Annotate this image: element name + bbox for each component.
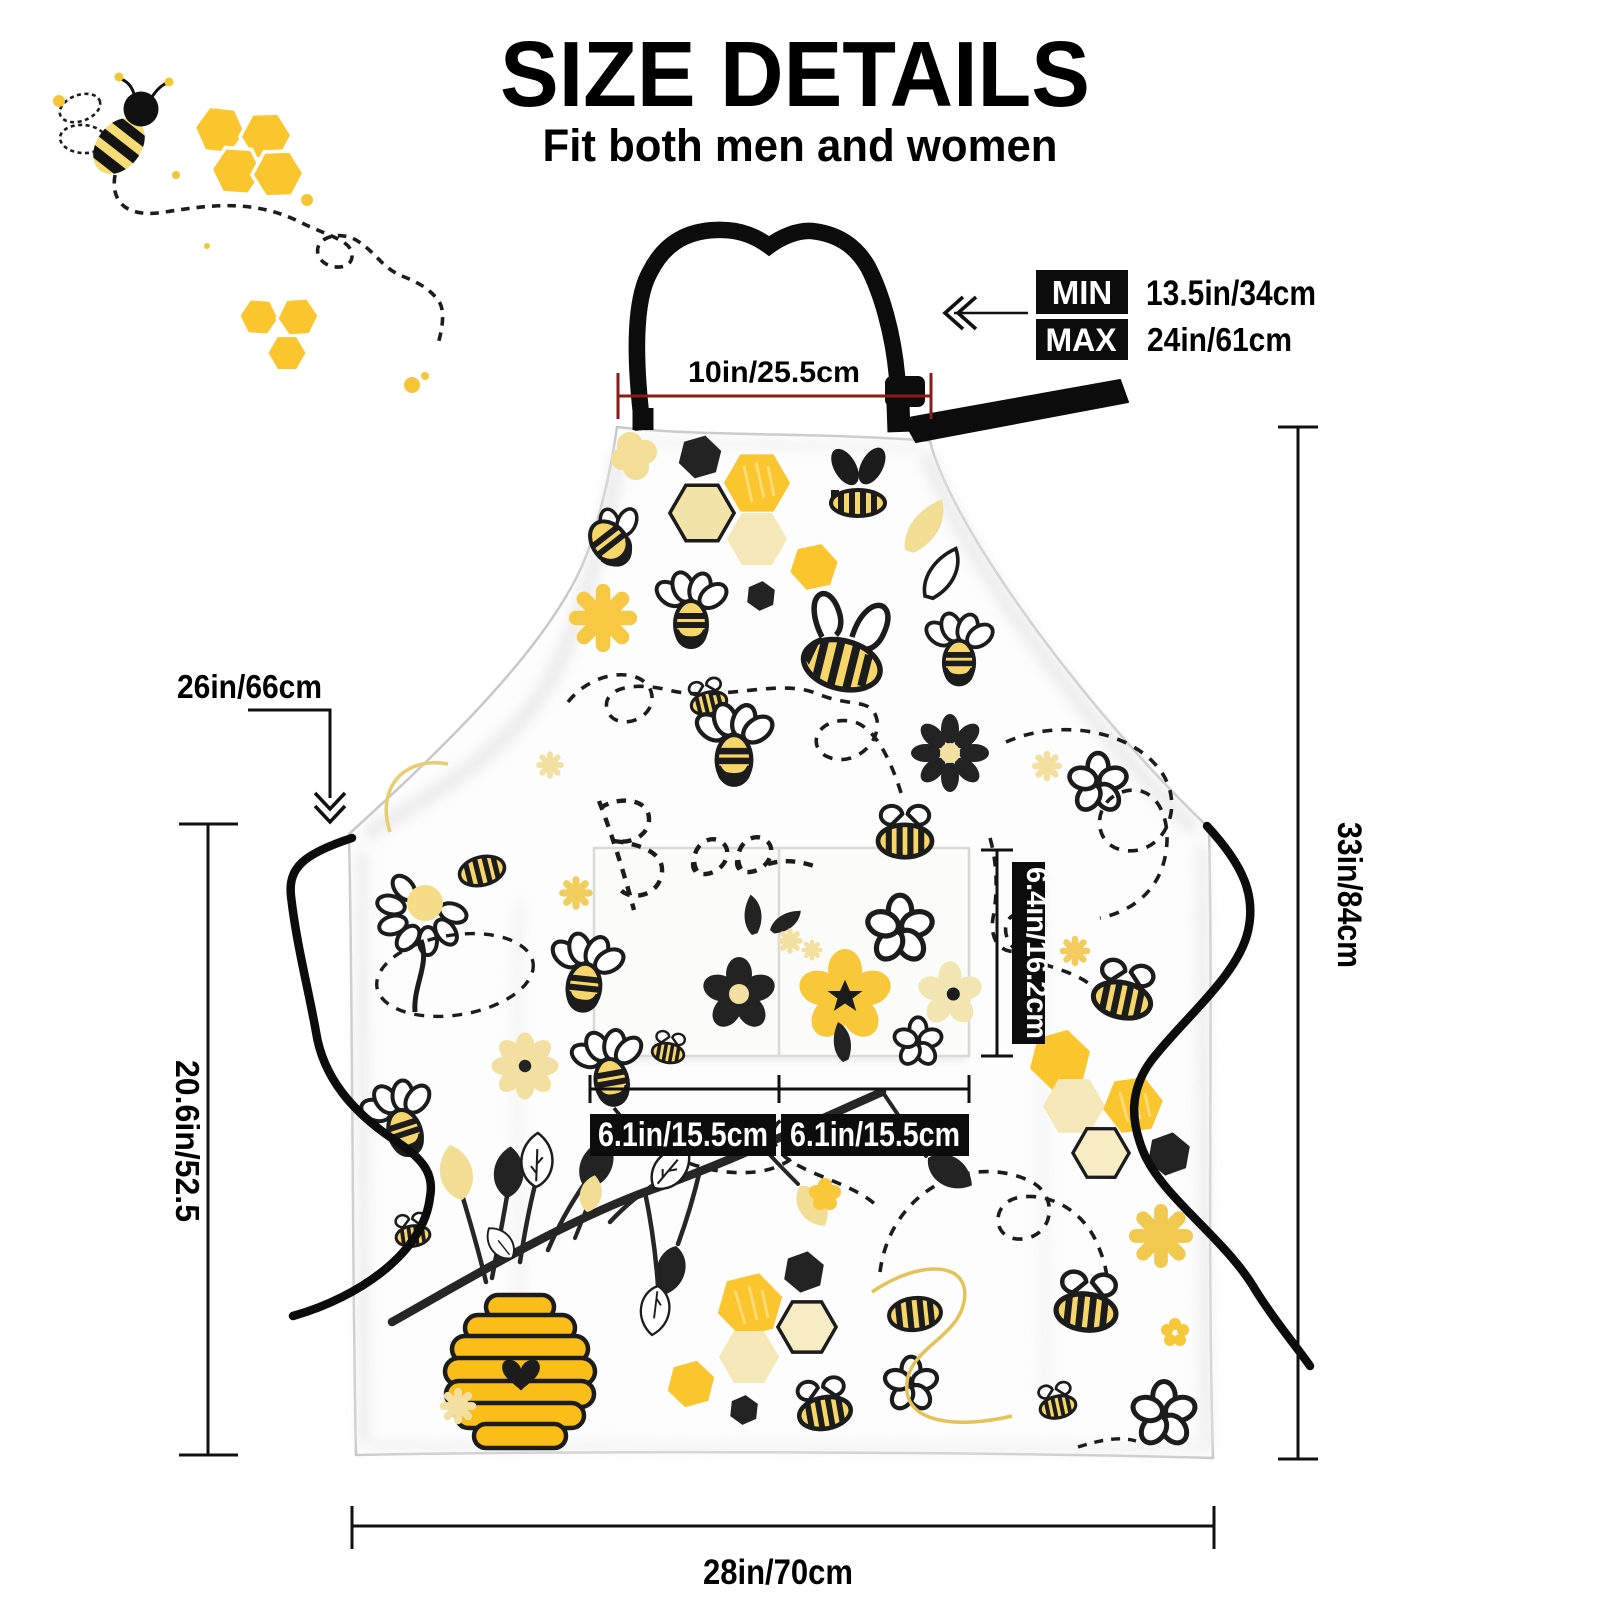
svg-text:6.1in/15.5cm: 6.1in/15.5cm [598, 1116, 768, 1154]
svg-text:6.4in/16.2cm: 6.4in/16.2cm [1020, 867, 1053, 1039]
svg-text:SIZE DETAILS: SIZE DETAILS [500, 22, 1090, 126]
svg-text:26in/66cm: 26in/66cm [177, 668, 322, 705]
svg-text:MAX: MAX [1045, 322, 1117, 358]
svg-text:Fit both men and women: Fit both men and women [543, 120, 1058, 171]
svg-text:MIN: MIN [1052, 274, 1113, 311]
svg-text:10in/25.5cm: 10in/25.5cm [688, 356, 860, 389]
svg-text:33in/84cm: 33in/84cm [1330, 822, 1368, 968]
svg-text:28in/70cm: 28in/70cm [703, 1553, 853, 1592]
svg-text:20.6in/52.5: 20.6in/52.5 [169, 1060, 206, 1222]
svg-text:13.5in/34cm: 13.5in/34cm [1146, 274, 1316, 313]
svg-text:6.1in/15.5cm: 6.1in/15.5cm [790, 1116, 960, 1154]
svg-text:24in/61cm: 24in/61cm [1147, 321, 1292, 358]
